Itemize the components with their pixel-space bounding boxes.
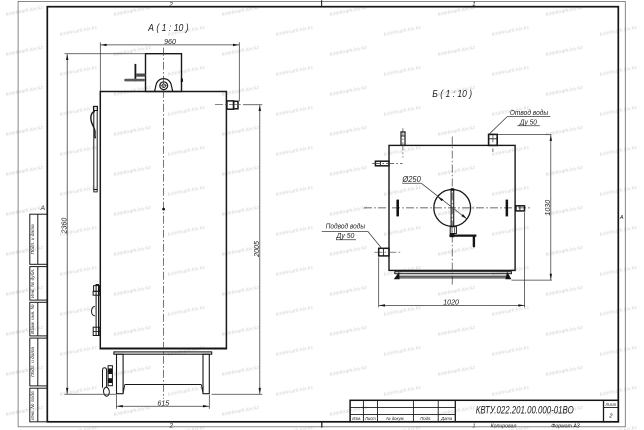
svg-text:Дата: Дата <box>440 416 453 421</box>
svg-text:Изм.: Изм. <box>352 416 361 421</box>
svg-text:2360: 2360 <box>60 218 68 235</box>
svg-text:Ø250: Ø250 <box>401 175 421 184</box>
svg-text:Ду 50: Ду 50 <box>519 119 537 126</box>
svg-text:Лист: Лист <box>605 402 617 407</box>
svg-text:2: 2 <box>169 422 174 429</box>
svg-text:1030: 1030 <box>544 200 552 216</box>
svg-text:№ докум.: № докум. <box>386 416 404 421</box>
svg-text:А: А <box>40 205 46 212</box>
svg-text:960: 960 <box>164 38 176 46</box>
svg-text:А: А <box>619 215 624 221</box>
svg-text:1: 1 <box>472 1 476 8</box>
svg-text:Подп.: Подп. <box>420 416 431 421</box>
svg-text:Формат А3: Формат А3 <box>551 423 579 429</box>
svg-text:1020: 1020 <box>443 299 459 307</box>
svg-text:КВТУ.022.201.00.000-01ВО: КВТУ.022.201.00.000-01ВО <box>476 404 574 416</box>
svg-text:Подп. и дата: Подп. и дата <box>30 224 36 254</box>
svg-text:Подп. и дата: Подп. и дата <box>30 347 36 377</box>
svg-text:2: 2 <box>168 1 173 8</box>
svg-text:615: 615 <box>157 399 169 407</box>
svg-text:Взам. инв. №: Взам. инв. № <box>30 304 36 334</box>
svg-text:Б ( 1 : 10 ): Б ( 1 : 10 ) <box>432 89 472 100</box>
svg-text:Подвод воды: Подвод воды <box>326 223 366 231</box>
svg-text:Лист: Лист <box>364 416 376 421</box>
svg-text:2005: 2005 <box>253 241 261 258</box>
svg-text:Инв. № подл.: Инв. № подл. <box>30 390 36 420</box>
svg-text:Ду 50: Ду 50 <box>336 233 355 240</box>
svg-text:А ( 1 : 10 ): А ( 1 : 10 ) <box>147 23 188 34</box>
svg-text:Инв. № дубл.: Инв. № дубл. <box>30 269 36 299</box>
svg-text:Копировал: Копировал <box>491 423 517 429</box>
svg-text:Отвод воды: Отвод воды <box>510 109 549 117</box>
svg-text:1: 1 <box>472 424 475 430</box>
